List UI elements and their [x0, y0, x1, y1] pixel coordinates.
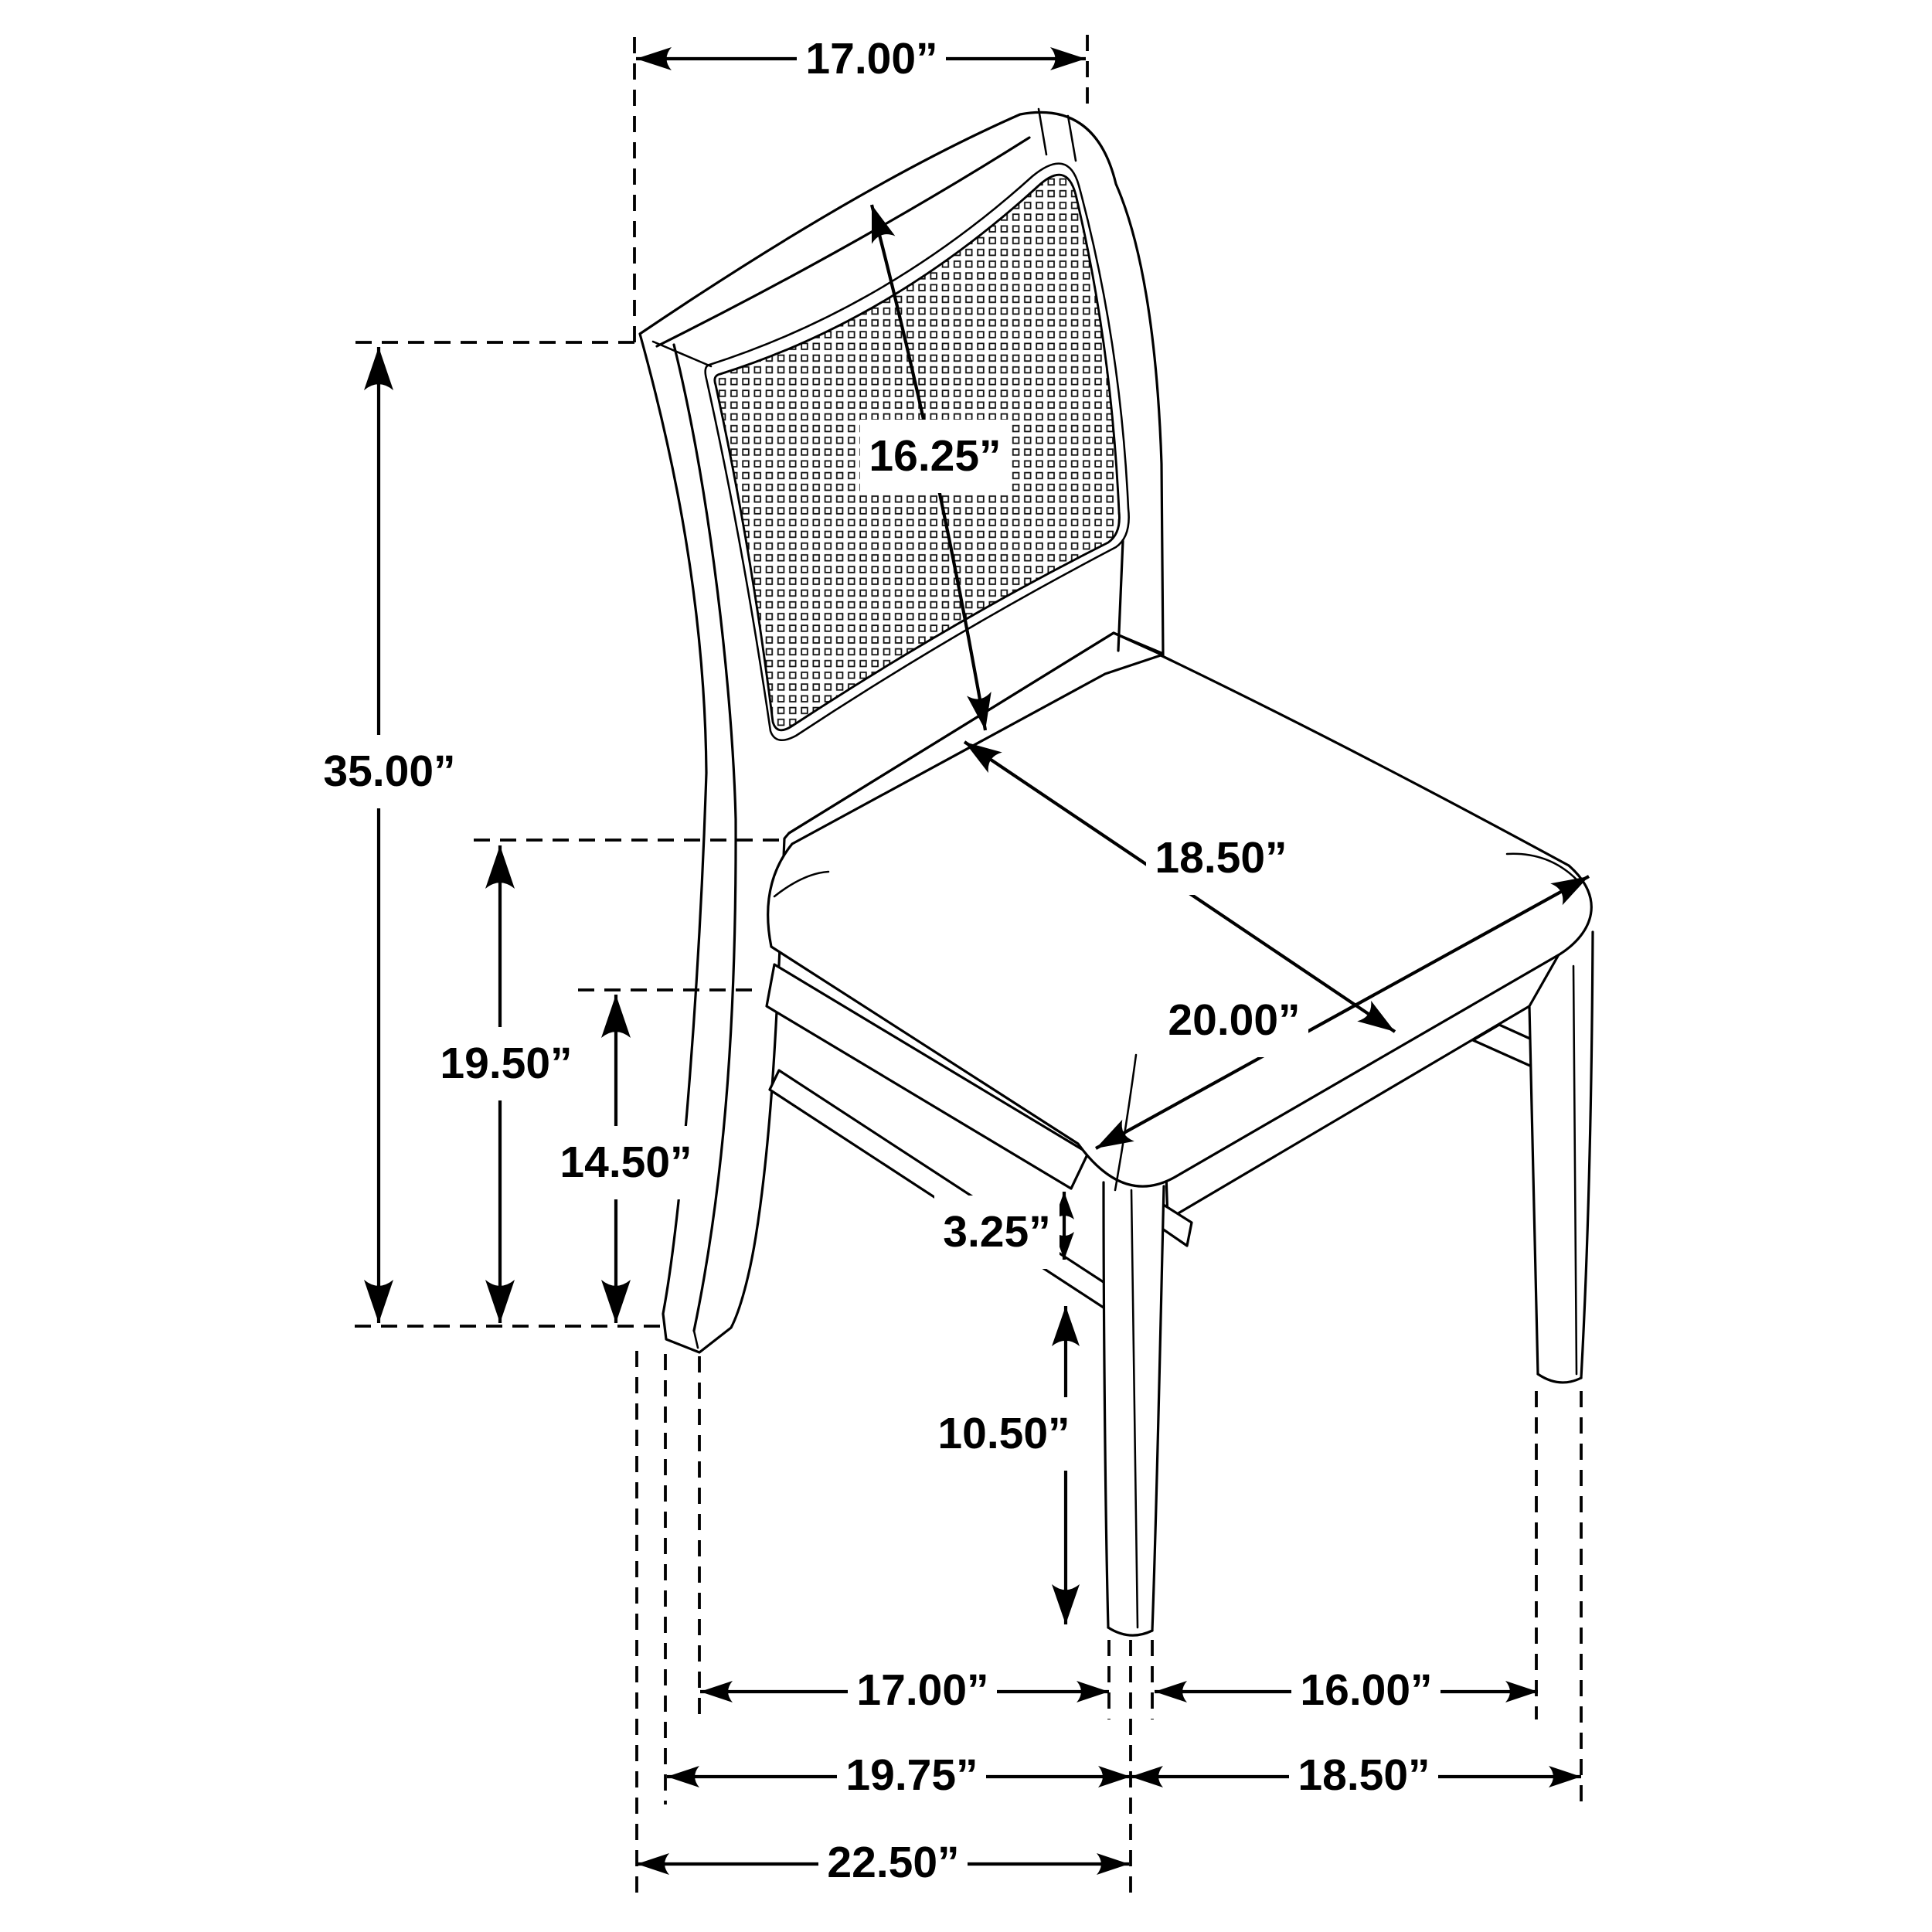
- svg-text:20.00”: 20.00”: [1168, 995, 1300, 1045]
- svg-text:14.50”: 14.50”: [560, 1138, 692, 1187]
- svg-text:22.50”: 22.50”: [827, 1838, 959, 1887]
- svg-text:16.00”: 16.00”: [1300, 1665, 1432, 1715]
- svg-text:16.25”: 16.25”: [869, 431, 1001, 481]
- svg-text:18.50”: 18.50”: [1155, 833, 1287, 883]
- svg-text:17.00”: 17.00”: [856, 1665, 988, 1715]
- svg-text:3.25”: 3.25”: [943, 1207, 1050, 1257]
- svg-text:19.50”: 19.50”: [440, 1039, 572, 1088]
- svg-text:19.75”: 19.75”: [845, 1750, 978, 1800]
- svg-text:17.00”: 17.00”: [805, 34, 937, 83]
- svg-text:18.50”: 18.50”: [1298, 1750, 1430, 1800]
- svg-text:35.00”: 35.00”: [323, 747, 455, 796]
- svg-text:10.50”: 10.50”: [937, 1409, 1070, 1458]
